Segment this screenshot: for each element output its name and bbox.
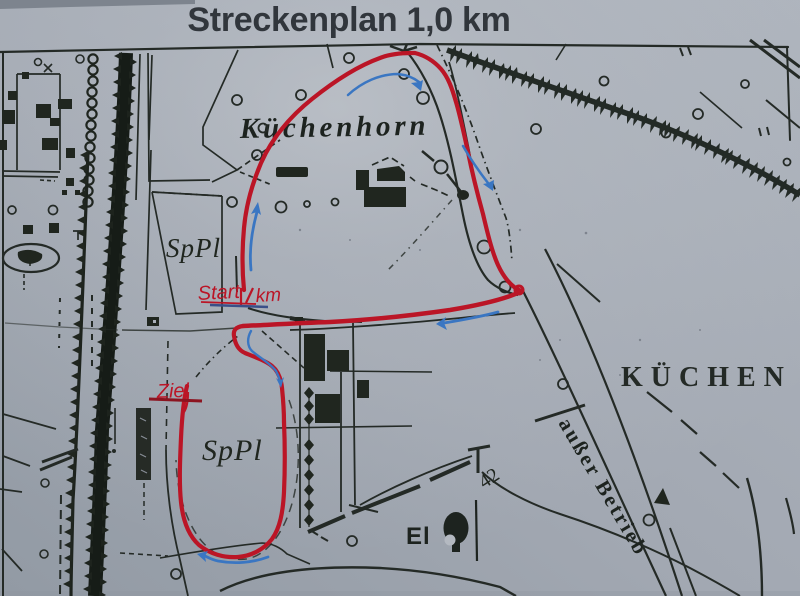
svg-text:SpPl: SpPl bbox=[202, 434, 263, 467]
svg-text:SpPl: SpPl bbox=[166, 233, 221, 263]
svg-text:Streckenplan 1,0 km: Streckenplan 1,0 km bbox=[187, 1, 510, 39]
svg-text:km: km bbox=[255, 285, 281, 307]
svg-text:KÜCHEN: KÜCHEN bbox=[621, 362, 792, 393]
svg-text:El: El bbox=[406, 523, 431, 550]
